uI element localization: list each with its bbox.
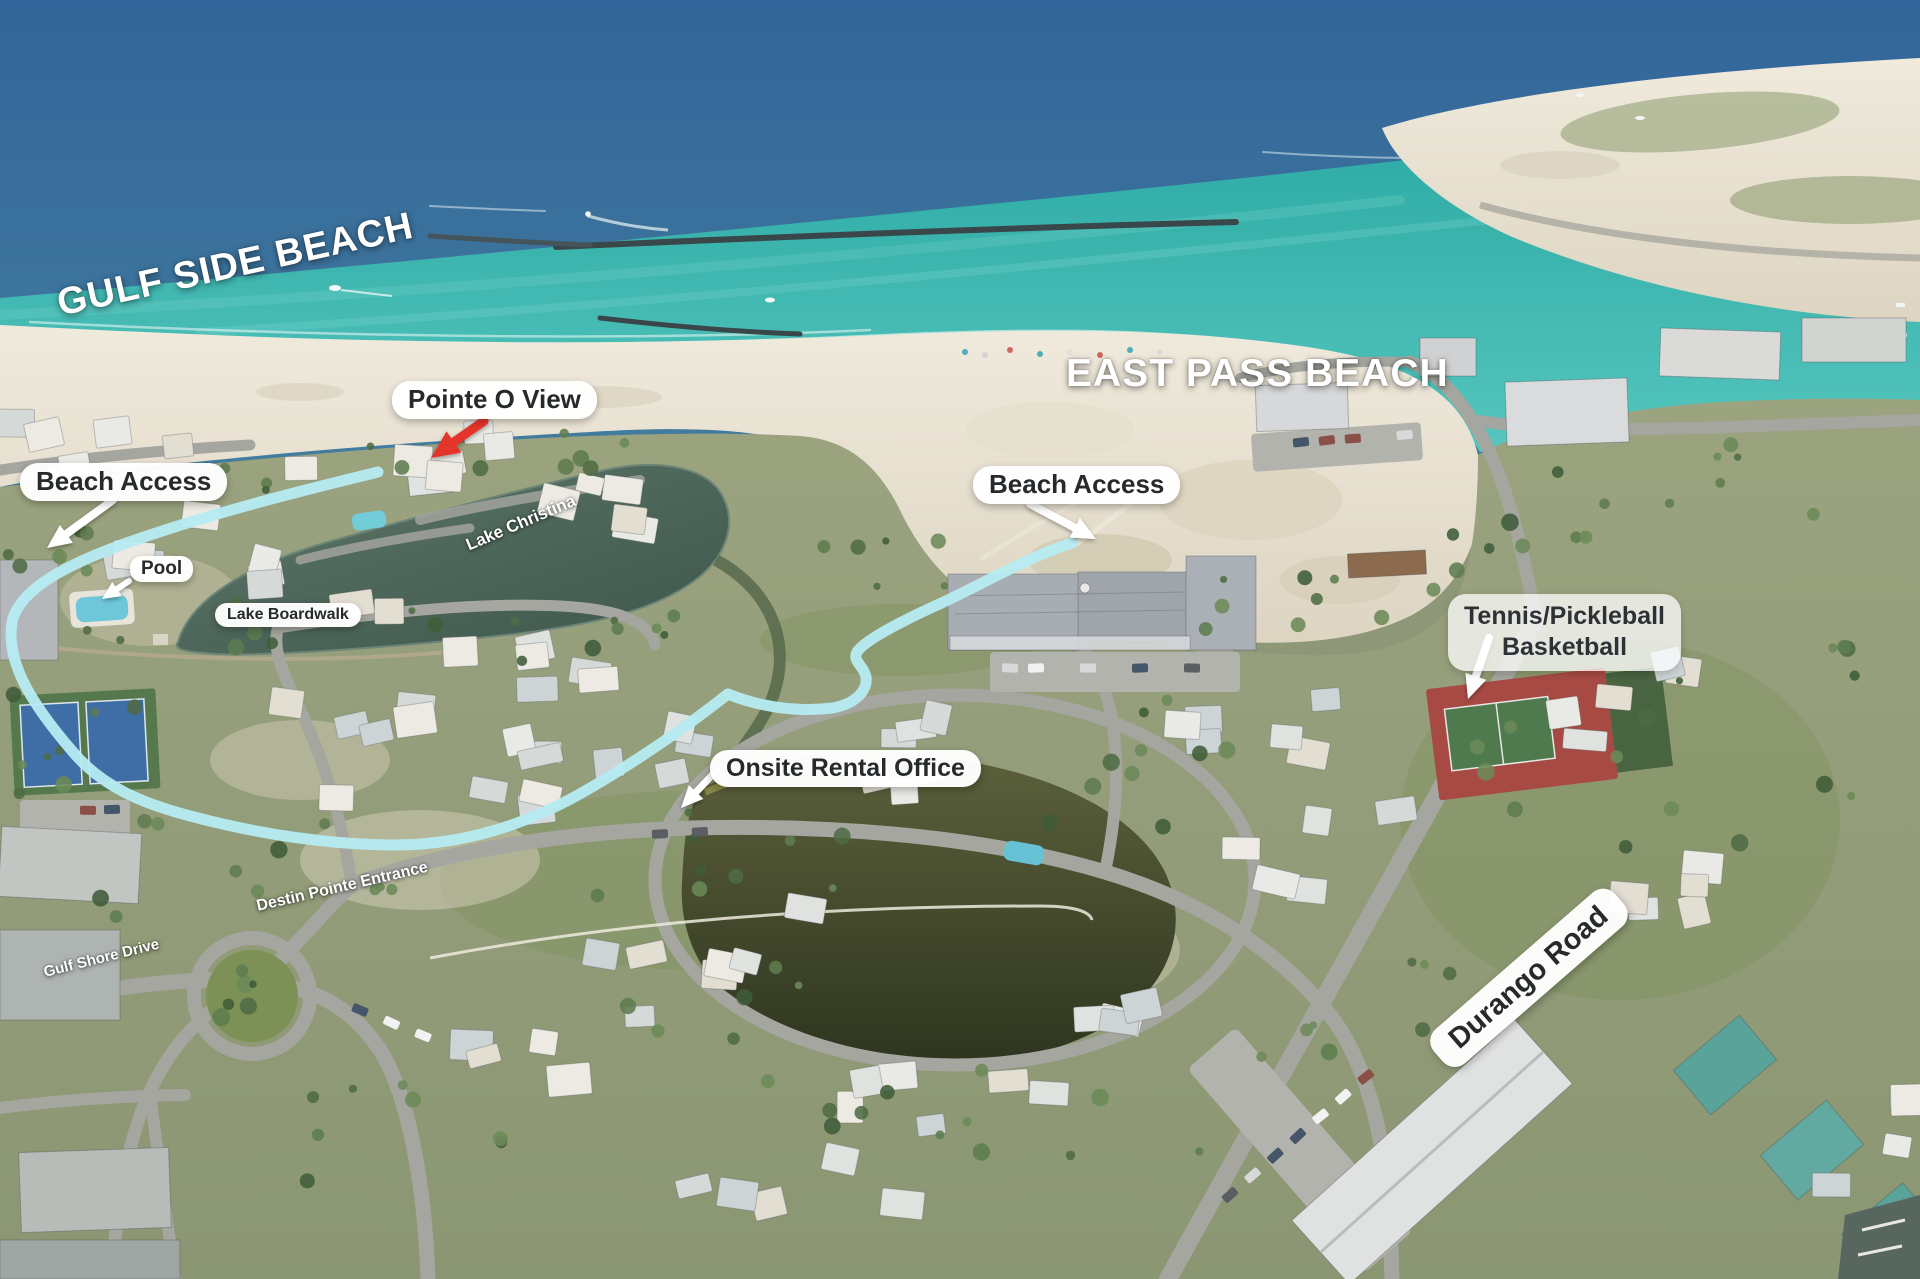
tree: [1470, 739, 1485, 754]
tree: [1220, 576, 1227, 583]
tree: [931, 534, 946, 549]
tree: [116, 636, 124, 644]
car: [104, 805, 120, 814]
tree: [247, 625, 262, 640]
house: [988, 1069, 1029, 1094]
tree: [1610, 750, 1623, 763]
tree: [44, 753, 51, 760]
tree: [651, 1024, 664, 1037]
house: [1310, 687, 1340, 711]
house: [1595, 684, 1633, 711]
roundabout-green: [206, 950, 298, 1042]
tree: [14, 788, 25, 799]
tree: [229, 865, 242, 878]
tree: [1407, 958, 1416, 967]
tree: [1311, 593, 1323, 605]
tree: [559, 429, 568, 438]
tree: [1816, 776, 1833, 793]
tree: [1195, 1147, 1203, 1155]
label-tennis-line1: Tennis/Pickleball: [1464, 601, 1665, 632]
tree: [1477, 763, 1495, 781]
tree: [1515, 538, 1530, 553]
tree: [850, 540, 865, 555]
tree: [1415, 1022, 1430, 1037]
house: [1164, 710, 1201, 740]
tree: [1715, 478, 1725, 488]
tree: [212, 1008, 230, 1026]
tree: [1552, 466, 1564, 478]
tree: [262, 486, 270, 494]
tree: [822, 1103, 837, 1118]
tree: [824, 1118, 841, 1135]
house: [442, 636, 478, 667]
tree: [1599, 498, 1610, 509]
tree: [1218, 741, 1235, 758]
label-tennis-line2: Basketball: [1464, 632, 1665, 663]
tree: [1676, 677, 1683, 684]
tree: [405, 1092, 421, 1108]
tree: [795, 982, 803, 990]
tree: [1638, 709, 1656, 727]
tree: [228, 639, 245, 656]
tree: [307, 1091, 319, 1103]
house: [1562, 728, 1607, 752]
tree: [1847, 792, 1855, 800]
tree: [936, 1130, 945, 1139]
house: [716, 1177, 759, 1211]
tree: [110, 910, 123, 923]
tree: [761, 1074, 775, 1088]
tree: [236, 964, 249, 977]
car: [1184, 663, 1200, 672]
house: [602, 474, 644, 505]
house: [1812, 1173, 1850, 1197]
tree: [127, 699, 142, 714]
tree: [1713, 453, 1721, 461]
tree: [1256, 1051, 1266, 1061]
tree: [55, 776, 72, 793]
house: [393, 701, 438, 738]
tree: [585, 640, 602, 657]
tree: [1321, 1043, 1338, 1060]
house: [1302, 805, 1332, 836]
tree: [1449, 562, 1465, 578]
tree: [398, 1080, 408, 1090]
tree: [1484, 543, 1495, 554]
label-pool: Pool: [130, 556, 193, 582]
house: [516, 676, 558, 702]
house: [268, 687, 305, 719]
tree: [367, 442, 375, 450]
house: [1882, 1133, 1912, 1158]
tree: [1155, 819, 1171, 835]
tree: [834, 828, 851, 845]
house: [880, 1188, 926, 1220]
tree: [652, 623, 662, 633]
tree: [18, 760, 27, 769]
house: [529, 1028, 559, 1056]
house: [1375, 796, 1418, 826]
tree: [882, 537, 889, 544]
tree: [83, 626, 92, 635]
tree: [408, 607, 415, 614]
house: [1029, 1080, 1070, 1106]
tree: [1501, 513, 1519, 531]
tree: [1723, 437, 1738, 452]
tree: [620, 438, 630, 448]
tree: [973, 1143, 990, 1160]
tree: [1192, 746, 1208, 762]
tree: [1837, 640, 1851, 654]
house: [285, 456, 318, 480]
tree: [319, 818, 330, 829]
tree: [349, 1085, 357, 1093]
tree: [300, 1173, 315, 1188]
tree: [591, 889, 605, 903]
house: [582, 938, 620, 971]
tree: [1124, 766, 1139, 781]
tree: [1297, 570, 1312, 585]
aerial-map: GULF SIDE BEACH EAST PASS BEACH Pointe O…: [0, 0, 1920, 1279]
house: [578, 666, 620, 693]
tree: [1665, 499, 1674, 508]
house: [1270, 724, 1303, 750]
tree: [1850, 671, 1860, 681]
tree: [493, 1131, 508, 1146]
car: [1132, 663, 1148, 673]
tree: [249, 980, 257, 988]
tree: [90, 708, 99, 717]
tree: [510, 617, 519, 626]
tree: [1734, 454, 1741, 461]
tree: [1139, 707, 1149, 717]
label-beach-access-center: Beach Access: [973, 466, 1180, 504]
tree: [270, 841, 287, 858]
tree: [266, 637, 278, 649]
car: [1344, 433, 1361, 443]
tree: [1330, 575, 1339, 584]
car: [1080, 663, 1096, 672]
car: [652, 829, 668, 839]
tree: [829, 884, 837, 892]
car: [1002, 663, 1018, 673]
tree: [728, 869, 743, 884]
tree: [695, 865, 706, 876]
tree: [785, 835, 796, 846]
car: [80, 806, 96, 815]
tree: [880, 1085, 895, 1100]
house: [374, 598, 404, 624]
tree: [1215, 599, 1230, 614]
label-tennis-pickleball-basketball: Tennis/Pickleball Basketball: [1448, 594, 1681, 671]
tree: [1135, 744, 1147, 756]
tree: [240, 998, 257, 1015]
tree: [1426, 583, 1440, 597]
car: [1028, 663, 1044, 673]
tree: [1199, 622, 1213, 636]
house: [546, 1062, 592, 1097]
tree: [427, 617, 443, 633]
tree: [736, 989, 752, 1005]
house: [319, 784, 354, 811]
label-onsite-rental-office: Onsite Rental Office: [710, 750, 981, 787]
house: [1545, 696, 1581, 730]
tree: [137, 814, 151, 828]
tree: [1504, 721, 1517, 734]
tree: [1041, 814, 1058, 831]
house: [162, 433, 194, 459]
label-east-pass-beach: EAST PASS BEACH: [1066, 352, 1449, 396]
tree: [223, 999, 234, 1010]
tree: [583, 460, 599, 476]
car: [1292, 437, 1309, 448]
tree: [769, 961, 782, 974]
tree: [1300, 1024, 1313, 1037]
house: [849, 1065, 884, 1098]
label-lake-boardwalk: Lake Boardwalk: [215, 603, 361, 627]
tree: [1291, 617, 1306, 632]
tree: [6, 687, 22, 703]
tree: [1447, 528, 1459, 540]
tree: [1103, 754, 1120, 771]
house: [611, 504, 648, 535]
tree: [395, 460, 410, 475]
tree: [692, 881, 707, 896]
tree: [558, 459, 574, 475]
tree: [1091, 1089, 1109, 1107]
car: [692, 827, 709, 837]
tree: [1664, 801, 1679, 816]
house: [425, 460, 463, 492]
house: [483, 431, 515, 460]
label-pointe-o-view: Pointe O View: [392, 381, 597, 419]
tree: [941, 582, 948, 589]
tree: [52, 549, 67, 564]
tree: [612, 623, 624, 635]
house: [1680, 874, 1708, 898]
tree: [1507, 801, 1523, 817]
house: [1890, 1084, 1920, 1116]
tree: [685, 808, 693, 816]
tree: [1443, 967, 1456, 980]
tree: [1807, 508, 1820, 521]
tree: [1162, 695, 1173, 706]
house: [1222, 837, 1260, 860]
tree: [12, 559, 27, 574]
tree: [1619, 840, 1633, 854]
tree: [975, 1064, 988, 1077]
tree: [80, 526, 94, 540]
house: [93, 416, 132, 449]
tree: [1374, 610, 1389, 625]
tree: [151, 817, 165, 831]
tree: [92, 890, 109, 907]
tree: [1579, 530, 1592, 543]
car: [1396, 430, 1413, 441]
tree: [620, 998, 636, 1014]
tree: [855, 1106, 869, 1120]
tree: [727, 1032, 739, 1044]
tree: [517, 656, 527, 666]
tree: [817, 540, 830, 553]
tree: [660, 631, 668, 639]
tree: [3, 549, 14, 560]
tree: [1828, 643, 1837, 652]
tree: [1731, 834, 1748, 851]
tree: [873, 583, 880, 590]
label-beach-access-left: Beach Access: [20, 463, 227, 501]
tree: [1084, 778, 1101, 795]
tree: [1066, 1151, 1075, 1160]
tree: [1420, 960, 1429, 969]
pavilion: [153, 634, 168, 645]
tree: [962, 1117, 971, 1126]
tree: [472, 460, 488, 476]
tree: [312, 1129, 324, 1141]
house: [246, 569, 283, 600]
tree: [667, 609, 680, 622]
car: [1318, 435, 1335, 446]
